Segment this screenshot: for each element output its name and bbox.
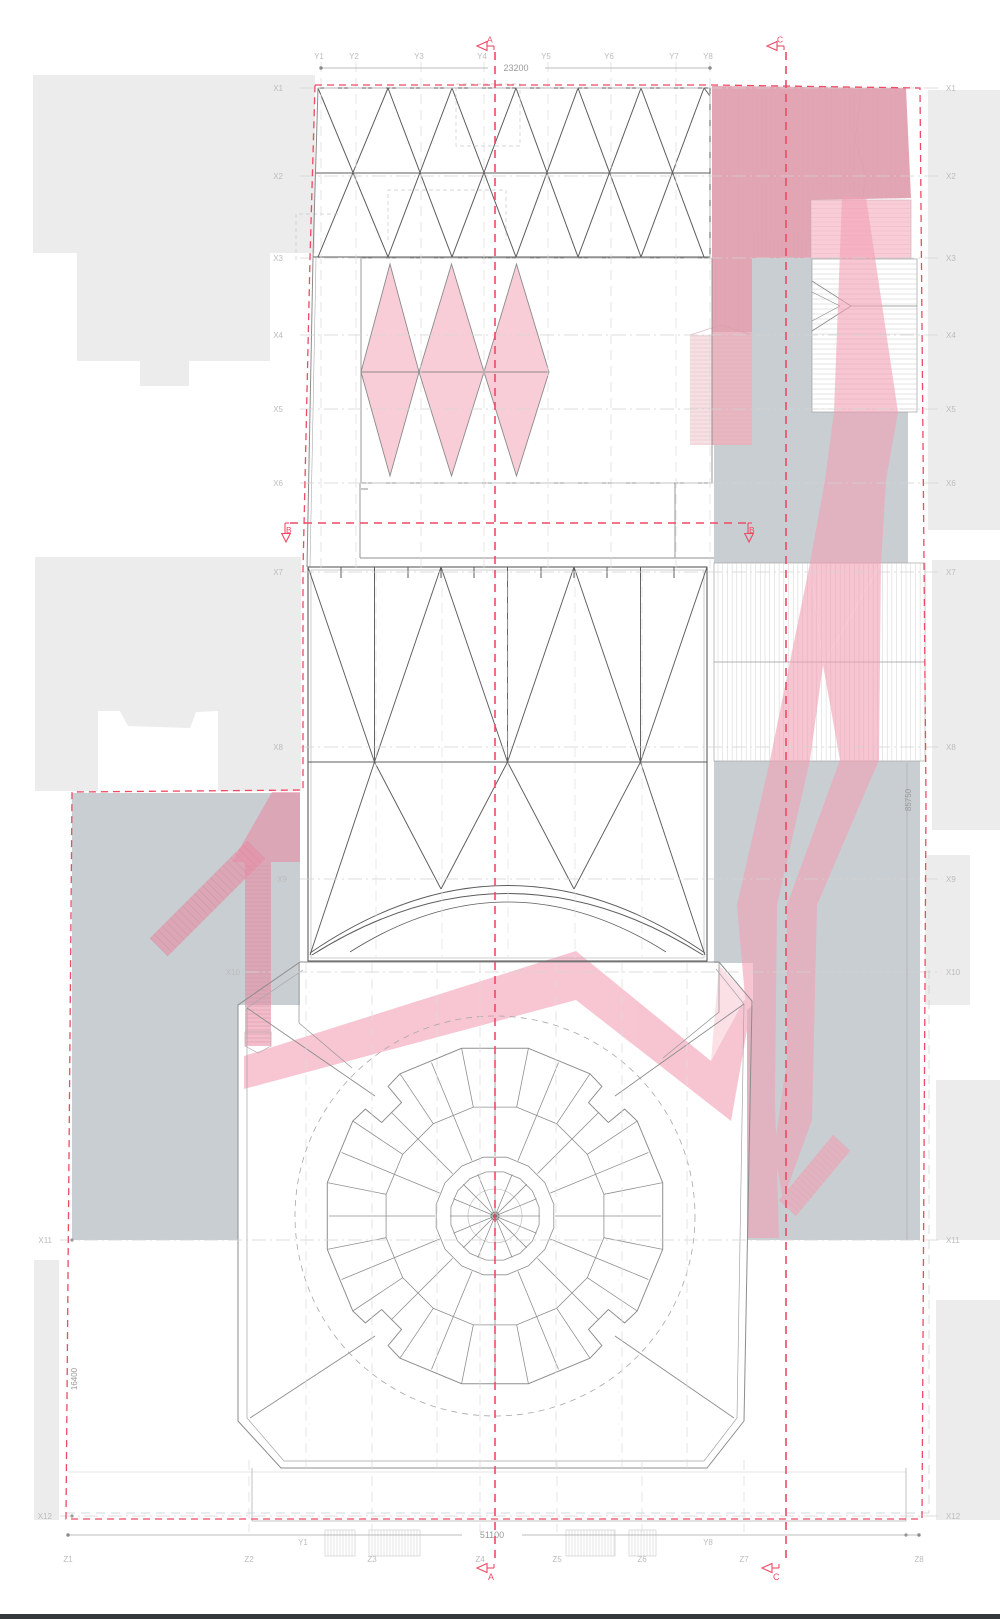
svg-text:Z6: Z6 [637,1555,647,1564]
svg-text:B: B [286,525,292,535]
svg-text:C: C [777,35,783,45]
svg-text:Z1: Z1 [63,1555,73,1564]
svg-text:X1: X1 [273,84,283,93]
svg-text:X7: X7 [273,568,283,577]
svg-text:X12: X12 [946,1512,961,1521]
svg-text:X8: X8 [946,743,956,752]
svg-text:C: C [773,1572,780,1582]
svg-text:Y7: Y7 [669,52,679,61]
svg-text:X10: X10 [226,968,241,977]
svg-text:Y8: Y8 [703,1538,713,1547]
svg-text:A: A [487,35,493,45]
svg-text:16400: 16400 [70,1367,79,1390]
svg-text:Y1: Y1 [298,1538,308,1547]
svg-text:23200: 23200 [503,63,528,73]
svg-text:Z3: Z3 [367,1555,377,1564]
svg-text:X6: X6 [273,479,283,488]
svg-text:X11: X11 [38,1236,52,1245]
svg-text:Y3: Y3 [414,52,424,61]
svg-text:Y4: Y4 [477,52,487,61]
svg-text:X2: X2 [273,172,283,181]
svg-text:X6: X6 [946,479,956,488]
svg-text:Y8: Y8 [703,52,713,61]
svg-text:X2: X2 [946,172,956,181]
svg-text:51100: 51100 [480,1530,504,1540]
svg-text:Z4: Z4 [475,1555,485,1564]
svg-text:Y2: Y2 [349,52,359,61]
svg-text:Z5: Z5 [552,1555,562,1564]
svg-text:Y5: Y5 [541,52,551,61]
svg-text:X9: X9 [277,875,287,884]
svg-text:X3: X3 [273,254,283,263]
svg-text:X5: X5 [946,405,956,414]
svg-text:A: A [488,1572,494,1582]
svg-text:X9: X9 [946,875,956,884]
svg-text:85750: 85750 [904,788,913,811]
svg-text:X8: X8 [273,743,283,752]
svg-text:Z8: Z8 [914,1555,924,1564]
svg-text:X12: X12 [38,1512,53,1521]
svg-text:X5: X5 [273,405,283,414]
svg-text:X4: X4 [946,331,956,340]
svg-text:X4: X4 [273,331,283,340]
svg-text:Y6: Y6 [604,52,614,61]
svg-text:X11: X11 [946,1236,960,1245]
svg-text:Z2: Z2 [244,1555,254,1564]
svg-text:X3: X3 [946,254,956,263]
svg-text:Z7: Z7 [739,1555,749,1564]
svg-text:X10: X10 [946,968,961,977]
svg-text:X1: X1 [946,84,956,93]
svg-text:Y1: Y1 [314,52,324,61]
svg-text:B: B [749,525,755,535]
svg-text:X7: X7 [946,568,956,577]
